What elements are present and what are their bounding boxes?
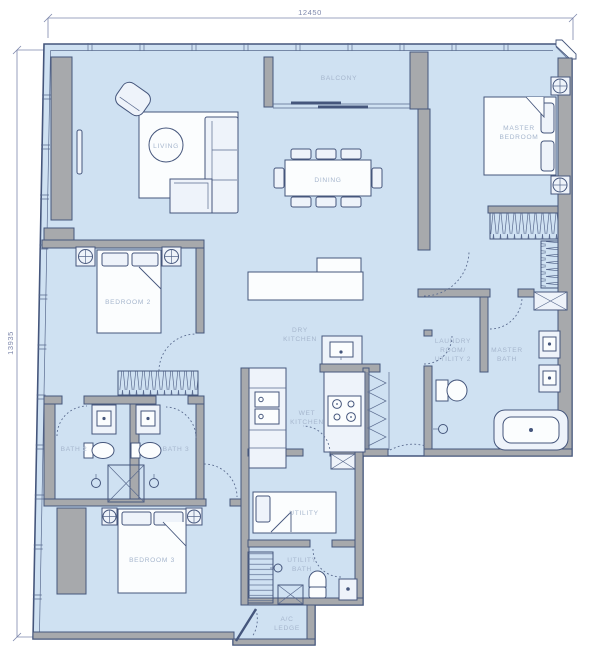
toilet [84,443,114,459]
bed-2 [97,250,161,333]
dimension-top: 12450 [44,8,577,40]
wall [410,52,428,109]
bathroom-sink [539,331,560,358]
room-label-master-bath: MASTER [491,347,523,354]
room-label-bath-2: BATH 2 [61,446,88,453]
wall [488,206,558,213]
wall [320,364,380,372]
dining-chair [341,149,361,159]
nightstand-lamp [102,508,117,525]
walkin-closet [490,213,558,239]
room-label-utility: UTILITY [289,510,318,517]
wall [248,540,310,547]
room-label-dry-kitchen: DRY [292,327,308,334]
wall [264,57,273,107]
nightstand-lamp [76,247,95,266]
nightstand-lamp [551,77,570,95]
floor-plan-drawing: 12450 13935 [0,0,608,660]
toilet [436,380,467,401]
dining-chair [372,168,382,188]
wall [424,330,432,336]
bathroom-sink [92,405,116,434]
wardrobe-bedroom3 [57,508,86,594]
room-label-laundry: UTILITY 2 [435,356,471,363]
wall [188,396,204,404]
shower [534,292,567,310]
bathroom-sink [539,365,560,392]
wall [84,396,156,404]
wall [418,109,430,250]
dining-chair [291,149,311,159]
sliding-door-panel [318,106,368,109]
room-label-living: LIVING [153,143,179,150]
bathtub [494,410,568,450]
wall [196,398,204,503]
room-label-laundry: LAUNDRY [435,338,471,345]
room-label-dining: DINING [314,177,341,184]
room-label-ac-ledge: A/C [280,616,293,623]
room-label-ac-ledge: LEDGE [274,625,300,632]
pillow [132,253,158,266]
wall [233,639,315,645]
nightstand-lamp [551,176,570,194]
stove [328,396,361,426]
room-label-laundry: ROOM/ [440,347,466,354]
dry-kitchen-sink [322,336,362,364]
wet-kitchen-counter-left [249,368,286,468]
pillow [102,253,128,266]
bathroom-sink [136,405,160,434]
wall [44,404,55,503]
sliding-door-panel [291,102,341,105]
pillow [122,512,151,525]
floor-plan-page: 12450 13935 [0,0,608,660]
room-label-wet-kitchen: WET [299,410,316,417]
room-label-balcony: BALCONY [321,75,357,82]
wall [44,396,62,404]
room-label-bedroom-2: BEDROOM 2 [105,299,151,306]
dining-chair [274,168,284,188]
wall [363,449,388,456]
dimension-top-label: 12450 [298,8,322,17]
room-label-wet-kitchen: KITCHEN [290,419,324,426]
service-shaft [331,454,355,469]
wall [33,632,234,639]
wall [196,248,204,333]
bed-3 [118,509,186,593]
wall [44,228,74,241]
room-label-bedroom-3: BEDROOM 3 [129,557,175,564]
dining-chair [341,197,361,207]
pillow [541,141,554,171]
drying-rack [248,552,273,603]
room-label-master-bedroom: BEDROOM [500,134,539,141]
tv-console [77,130,82,174]
room-label-master-bedroom: MASTER [503,125,535,132]
dining-chair [291,197,311,207]
room-label-utility-bath: UTILITY [287,557,316,564]
dining-chair [316,149,336,159]
room-label-master-bath: BATH [497,356,517,363]
wall [518,289,534,297]
wardrobe-bedroom2 [118,371,198,395]
room-label-utility-bath: BATH [292,566,312,573]
dining-chair [316,197,336,207]
wall [230,499,241,506]
nightstand-lamp [162,247,181,266]
toilet [131,443,161,459]
pillow [256,496,270,522]
nightstand-lamp [186,508,202,525]
living-area: LIVING [149,128,183,162]
wall [51,57,72,220]
wet-kitchen-counter-right [324,372,365,452]
wall [558,58,572,456]
toilet [309,571,326,598]
bathroom-sink [339,579,357,600]
room-label-bath-3: BATH 3 [163,446,190,453]
wall [424,366,432,456]
wall [480,297,488,372]
walkin-closet [541,241,558,288]
dimension-left-label: 13935 [6,331,15,355]
room-label-dry-kitchen: KITCHEN [283,336,317,343]
